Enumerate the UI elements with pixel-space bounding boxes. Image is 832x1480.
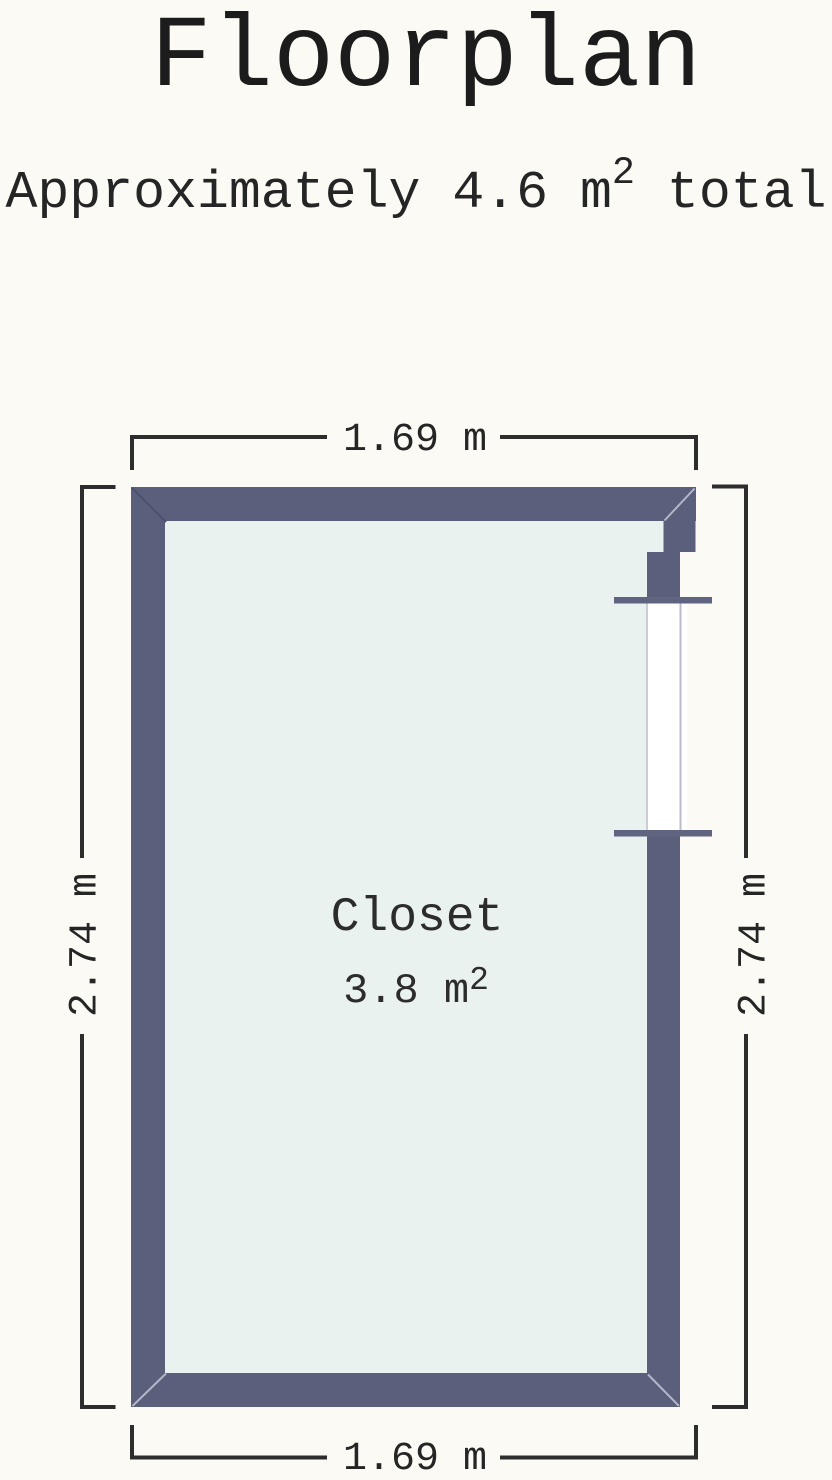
svg-text:Closet: Closet bbox=[331, 891, 504, 945]
svg-text:1.69 m: 1.69 m bbox=[343, 418, 487, 463]
svg-text:2.74 m: 2.74 m bbox=[64, 873, 109, 1017]
svg-text:Floorplan: Floorplan bbox=[151, 0, 702, 116]
svg-text:3.8 m2: 3.8 m2 bbox=[343, 962, 489, 1015]
svg-text:1.69 m: 1.69 m bbox=[343, 1437, 487, 1480]
svg-text:2.74 m: 2.74 m bbox=[733, 873, 778, 1017]
